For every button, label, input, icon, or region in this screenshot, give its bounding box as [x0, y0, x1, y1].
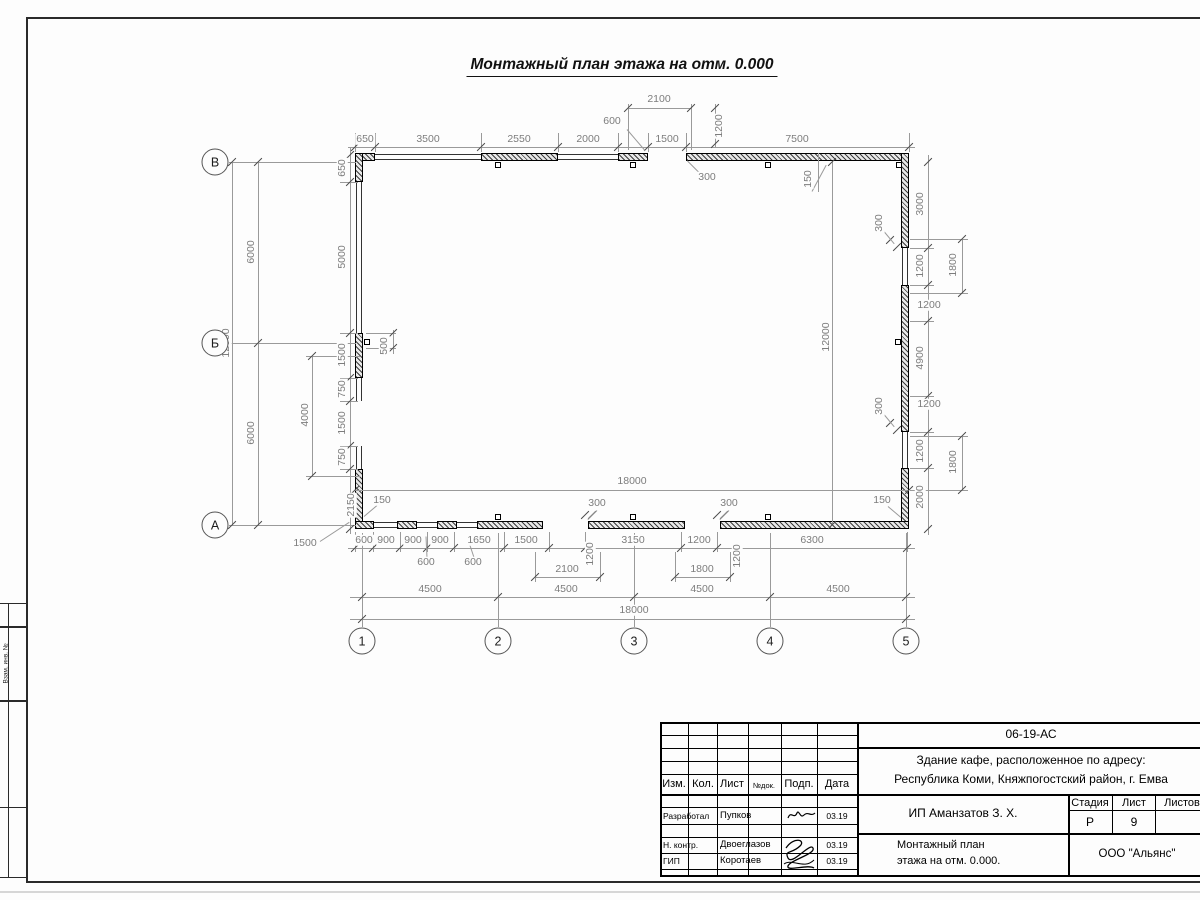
signature: [785, 807, 817, 823]
dim-label: 1650: [466, 535, 491, 546]
wall-segment: [481, 153, 558, 161]
row-date: 03.19: [826, 856, 847, 866]
dim-label: 900: [430, 535, 450, 546]
row-name: Пупков: [720, 810, 751, 821]
embed-plate: [896, 162, 902, 168]
wall-segment: [397, 521, 417, 529]
axis-bubble: 4: [757, 628, 784, 655]
dimension-line: [681, 532, 682, 552]
row-name: Двоеглазов: [720, 839, 771, 850]
dim-label: 600: [602, 116, 622, 127]
row-name: Коротаев: [720, 855, 761, 866]
wall-segment: [355, 153, 363, 182]
dim-label: 5000: [337, 244, 348, 269]
object-address-line1: Здание кафе, расположенное по адресу:: [916, 753, 1145, 767]
dim-label: 4000: [300, 402, 311, 427]
window-opening: [374, 522, 397, 528]
dim-label: 1500: [654, 134, 679, 145]
dim-label: 1500: [292, 538, 317, 549]
axis-bubble: А: [202, 512, 229, 539]
dimension-line: [675, 577, 730, 578]
dim-label: 600: [354, 535, 374, 546]
dim-label: 2100: [646, 94, 671, 105]
dimension-tick: [893, 426, 901, 434]
embed-plate: [895, 339, 901, 345]
dim-label: 300: [719, 498, 739, 509]
dim-label: 300: [587, 498, 607, 509]
dim-label: 6000: [246, 239, 257, 264]
col-data: Дата: [825, 778, 849, 790]
sheet-value: 9: [1131, 815, 1138, 829]
wall-segment: [901, 153, 909, 248]
col-izm: Изм.: [662, 778, 686, 790]
wall-segment: [588, 521, 685, 529]
dim-label: 300: [874, 396, 885, 416]
drawing-sheet: Взам. инв. № Монтажный план этажа на отм…: [0, 0, 1200, 900]
dimension-line: [454, 532, 455, 552]
dim-label: 750: [337, 447, 348, 467]
dim-label: 650: [337, 158, 348, 178]
dimension-line: [400, 532, 401, 552]
dim-label: 1500: [337, 410, 348, 435]
embed-plate: [495, 514, 501, 520]
embed-plate: [765, 514, 771, 520]
dim-label: 3150: [620, 535, 645, 546]
title-block: 06-19-АС Здание кафе, расположенное по а…: [660, 722, 1200, 877]
col-ndok: №док.: [753, 781, 775, 790]
stage-label: Стадия: [1071, 797, 1109, 809]
dim-label: 300: [697, 172, 717, 183]
dim-label: 1800: [948, 252, 959, 277]
wall-segment: [720, 521, 909, 529]
dim-label: 2100: [554, 564, 579, 575]
wall-segment: [618, 153, 648, 161]
dim-label: 4500: [825, 584, 850, 595]
dim-label: 1500: [513, 535, 538, 546]
dim-label: 2000: [915, 484, 926, 509]
dimension-line: [717, 532, 718, 552]
window-opening: [375, 154, 481, 160]
dimension-line: [348, 548, 915, 549]
row-date: 03.19: [826, 840, 847, 850]
dim-label: 2550: [506, 134, 531, 145]
dimension-line: [691, 104, 692, 150]
embed-plate: [495, 162, 501, 168]
dim-label: 7500: [784, 134, 809, 145]
dim-label: 150: [872, 495, 892, 506]
drawing-name-line1: Монтажный план: [897, 839, 985, 851]
leader-line: [364, 505, 378, 517]
sheet-label: Лист: [1122, 797, 1146, 809]
dim-label: 1200: [585, 541, 596, 566]
row-role: Н. контр.: [663, 840, 698, 850]
dim-label: 1200: [915, 253, 926, 278]
axis-bubble: 5: [893, 628, 920, 655]
dim-label: 1500: [337, 342, 348, 367]
dimension-line: [910, 285, 934, 286]
dim-label: 150: [803, 169, 814, 189]
dimension-line: [375, 133, 376, 152]
window-opening: [902, 432, 908, 468]
sheets-label: Листов: [1164, 797, 1200, 809]
window-opening: [356, 182, 362, 333]
wall-segment: [901, 468, 909, 529]
dim-label: 2000: [575, 134, 600, 145]
dimension-line: [962, 436, 963, 490]
dim-label: 150: [372, 495, 392, 506]
dimension-line: [628, 108, 691, 109]
wall-segment: [686, 153, 909, 161]
dim-label: 900: [376, 535, 396, 546]
col-podp: Подп.: [784, 778, 813, 790]
dim-label: 1200: [686, 535, 711, 546]
embed-plate: [630, 162, 636, 168]
dimension-line: [832, 162, 833, 525]
dimension-line: [628, 104, 629, 150]
dim-label: 4500: [553, 584, 578, 595]
dim-label: 750: [337, 379, 348, 399]
dim-label: 650: [355, 134, 375, 145]
dim-label: 12000: [821, 321, 832, 352]
document-code: 06-19-АС: [1005, 727, 1056, 741]
dim-label: 1200: [916, 399, 941, 410]
client-name: ИП Аманзатов З. Х.: [908, 806, 1017, 820]
wall-segment: [355, 521, 374, 529]
dimension-line: [312, 356, 313, 476]
dimension-line: [355, 490, 909, 491]
dim-label: 300: [874, 213, 885, 233]
dimension-line: [818, 153, 819, 192]
dim-label: 1200: [732, 543, 743, 568]
dimension-line: [648, 133, 649, 152]
dimension-line: [306, 476, 360, 477]
stage-value: Р: [1086, 815, 1094, 829]
dimension-line: [558, 133, 559, 152]
wall-segment: [901, 285, 909, 432]
dimension-line: [504, 532, 505, 552]
embed-plate: [364, 339, 370, 345]
window-opening: [558, 154, 618, 160]
dimension-line: [229, 525, 356, 526]
dim-label: 3000: [915, 191, 926, 216]
row-role: ГИП: [663, 856, 680, 866]
dim-label: 4500: [689, 584, 714, 595]
axis-bubble: В: [202, 149, 229, 176]
embed-plate: [630, 514, 636, 520]
col-list: Лист: [720, 778, 744, 790]
row-role: Разработал: [663, 811, 709, 821]
dim-label: 2150: [346, 492, 357, 517]
dim-label: 6300: [799, 535, 824, 546]
dimension-line: [770, 533, 771, 627]
dimension-line: [535, 577, 600, 578]
object-address-line2: Республика Коми, Княжпогостский район, г…: [894, 772, 1168, 786]
dimension-line: [907, 532, 908, 552]
dimension-line: [481, 133, 482, 152]
dimension-line: [910, 468, 934, 469]
dimension-line: [618, 133, 619, 152]
dim-label: 600: [416, 557, 436, 568]
dim-label: 3500: [415, 134, 440, 145]
dim-label: 1800: [948, 449, 959, 474]
row-date: 03.19: [826, 811, 847, 821]
dimension-line: [348, 147, 915, 148]
axis-bubble: 1: [349, 628, 376, 655]
dim-label: 1200: [915, 438, 926, 463]
dim-label: 1200: [916, 300, 941, 311]
dimension-line: [306, 356, 360, 357]
axis-bubble: 3: [621, 628, 648, 655]
dim-label: 6000: [246, 420, 257, 445]
window-opening: [417, 522, 437, 528]
dimension-line: [910, 432, 934, 433]
dim-label: 900: [403, 535, 423, 546]
dimension-line: [909, 133, 910, 152]
dim-label: 1800: [689, 564, 714, 575]
dim-label: 18000: [618, 605, 649, 616]
dimension-line: [686, 133, 687, 152]
dimension-line: [910, 321, 934, 322]
dimension-line: [498, 533, 499, 627]
dimension-line: [362, 533, 363, 627]
dimension-line: [910, 248, 934, 249]
leader-line: [888, 506, 902, 518]
drawing-name-line2: этажа на отм. 0.000.: [897, 855, 1000, 867]
dimension-line: [962, 239, 963, 293]
axis-bubble: 2: [485, 628, 512, 655]
wall-segment: [477, 521, 543, 529]
dim-label: 4900: [915, 345, 926, 370]
dim-label: 500: [379, 336, 390, 356]
dimension-line: [928, 155, 929, 535]
dimension-line: [350, 619, 915, 620]
signature: [780, 834, 818, 874]
dimension-line: [232, 162, 233, 525]
embed-plate: [765, 162, 771, 168]
window-opening: [902, 248, 908, 285]
dim-label: 600: [463, 557, 483, 568]
axis-bubble: Б: [202, 330, 229, 357]
window-opening: [457, 522, 477, 528]
col-kol: Кол.: [692, 778, 714, 790]
dimension-line: [549, 532, 550, 552]
dim-label: 1200: [714, 113, 725, 138]
wall-segment: [437, 521, 457, 529]
dim-label: 4500: [417, 584, 442, 595]
window-opening: [356, 378, 362, 401]
dimension-tick: [893, 243, 901, 251]
company-name: ООО "Альянс": [1099, 848, 1176, 860]
window-opening: [356, 446, 362, 469]
dim-label: 18000: [616, 476, 647, 487]
